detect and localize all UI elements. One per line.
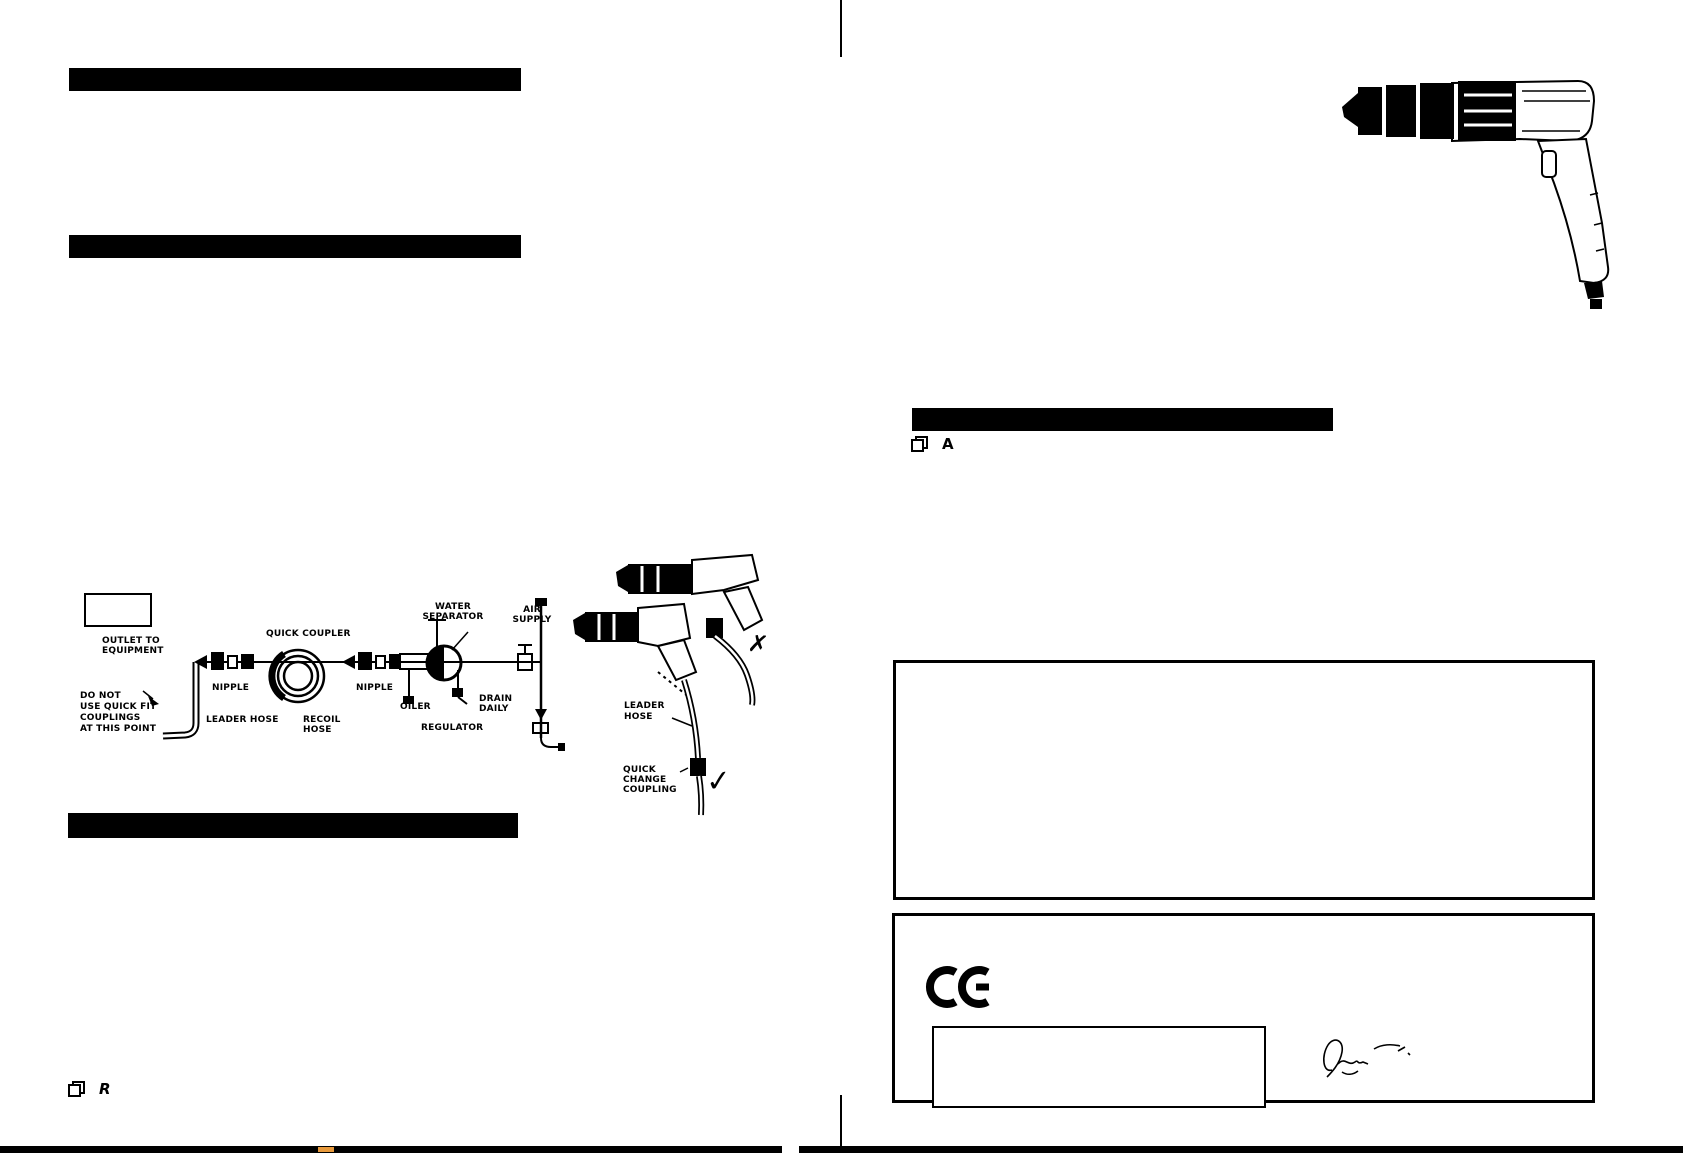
correct-mark: ✓ (705, 763, 733, 800)
label-leader (672, 718, 692, 726)
flow-arrow (342, 655, 355, 669)
wrong-mark: ✗ (746, 629, 770, 660)
air-inlet (1584, 281, 1604, 299)
manual-double-page: OUTLET TO EQUIPMENT DO NOT USE QUICK FIT… (0, 0, 1683, 1153)
page-divider-bottom (840, 1095, 842, 1146)
pages-icon (911, 436, 928, 452)
label-leader-hose: LEADER HOSE (206, 715, 279, 725)
redacted-heading-bar (69, 68, 521, 91)
drill-chuck (1358, 87, 1382, 135)
leader-hose-line (684, 680, 698, 758)
label-leader-hose-2: LEADER HOSE (624, 701, 665, 723)
recoil-hose-coil (272, 650, 324, 702)
quick-change-coupling-symbol (690, 758, 706, 776)
label-leader (680, 768, 688, 772)
label-no-quick-fit: DO NOT USE QUICK FIT COUPLINGS AT THIS P… (80, 691, 156, 735)
ce-mark (928, 962, 994, 1012)
shutoff-valve (518, 645, 532, 670)
nipple-symbol-right (376, 656, 385, 668)
oiler-drip-leg (403, 670, 414, 704)
label-air-supply: AIR SUPPLY (512, 605, 552, 625)
label-oiler: OILER (400, 702, 431, 712)
coupling-at-tool (706, 618, 723, 638)
declaration-box-upper (893, 660, 1595, 900)
drill-chuck-tip (1342, 93, 1358, 127)
label-nipple-right: NIPPLE (356, 683, 393, 693)
label-outlet: OUTLET TO EQUIPMENT (102, 636, 164, 656)
label-recoil-hose: RECOIL HOSE (303, 715, 341, 735)
drill-trigger (1542, 151, 1556, 177)
figure-ref-r: R (68, 1081, 111, 1097)
redacted-heading-bar (69, 235, 521, 258)
label-regulator: REGULATOR (421, 723, 483, 733)
drop-pipe (163, 662, 196, 736)
drill-illustration (1340, 75, 1620, 345)
figure-ref-a: A (911, 436, 954, 452)
quick-coupler-symbol-right (358, 652, 372, 670)
pages-icon (68, 1081, 85, 1097)
redacted-heading-bar (912, 408, 1333, 431)
nipple-symbol-left (228, 656, 237, 668)
figure-ref-letter: R (99, 1081, 111, 1097)
label-water-separator: WATER SEPARATOR (421, 602, 485, 622)
signature (1318, 1032, 1413, 1082)
page-divider-top (840, 0, 842, 57)
model-info-box (932, 1026, 1266, 1108)
scan-artifact (318, 1147, 334, 1152)
bottom-edge-strip-left (0, 1146, 782, 1153)
figure-ref-letter: A (942, 436, 954, 452)
label-quick-coupler: QUICK COUPLER (266, 629, 351, 639)
bottom-edge-strip-right (799, 1146, 1683, 1153)
label-drain-daily: DRAIN DAILY (479, 694, 512, 714)
label-quick-change-coupling: QUICK CHANGE COUPLING (623, 765, 677, 795)
label-leader (452, 632, 468, 650)
quick-coupler-symbol-left (211, 652, 224, 670)
label-nipple-left: NIPPLE (212, 683, 249, 693)
